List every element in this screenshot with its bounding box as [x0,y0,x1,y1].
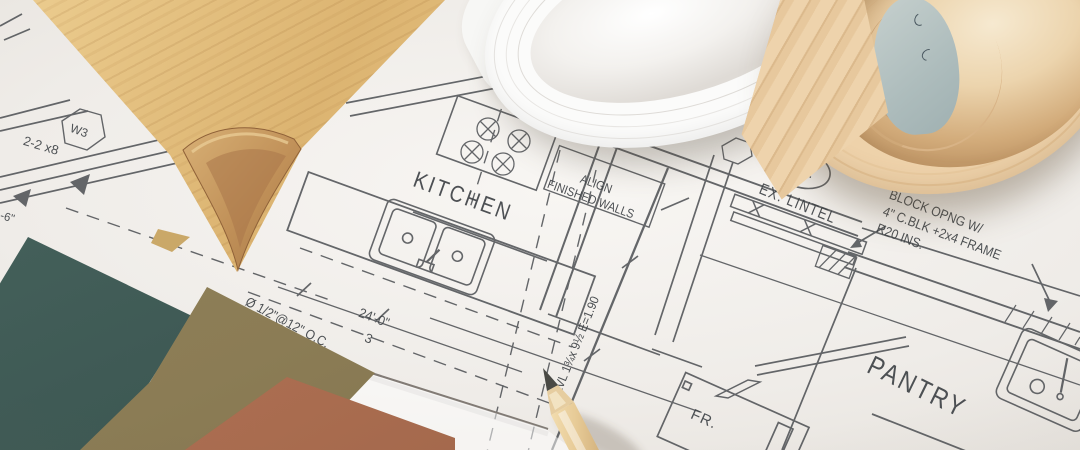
photo-scene: KITCHEN PANTRY ALIGN FINISHED WALLS E.W.… [0,0,1080,450]
pencil-shadow [551,403,649,450]
kitchen-label: KITCHEN [410,166,517,227]
block-opening-note: BLOCK OPNG W/ 4" C.BLK +2x4 FRAME R20 IN… [874,186,1010,281]
fr-room [657,373,809,450]
ex-lintel-label: EX. LINTEL [756,181,838,228]
pantry-sink [994,326,1080,434]
pantry-label: PANTRY [862,350,971,424]
wall-hatch [1005,305,1080,345]
cooktop-burners [461,118,530,175]
window-tag: W3 [68,121,90,140]
hatched-wall-stub [815,246,856,279]
pen-mark [919,46,936,62]
lvl-beam-note: 3LVL 1¾x 9½ E=1.90 [548,294,602,401]
fr-label: FR. [688,406,720,433]
header-note: 2-2 x8 [22,133,61,158]
offset-dimension: -6" [0,210,16,225]
span-dimension: 24'-0" [357,305,392,330]
grid-mark: 3 [363,330,375,347]
align-walls-note: ALIGN FINISHED WALLS [545,161,642,223]
pen-mark [912,11,927,27]
